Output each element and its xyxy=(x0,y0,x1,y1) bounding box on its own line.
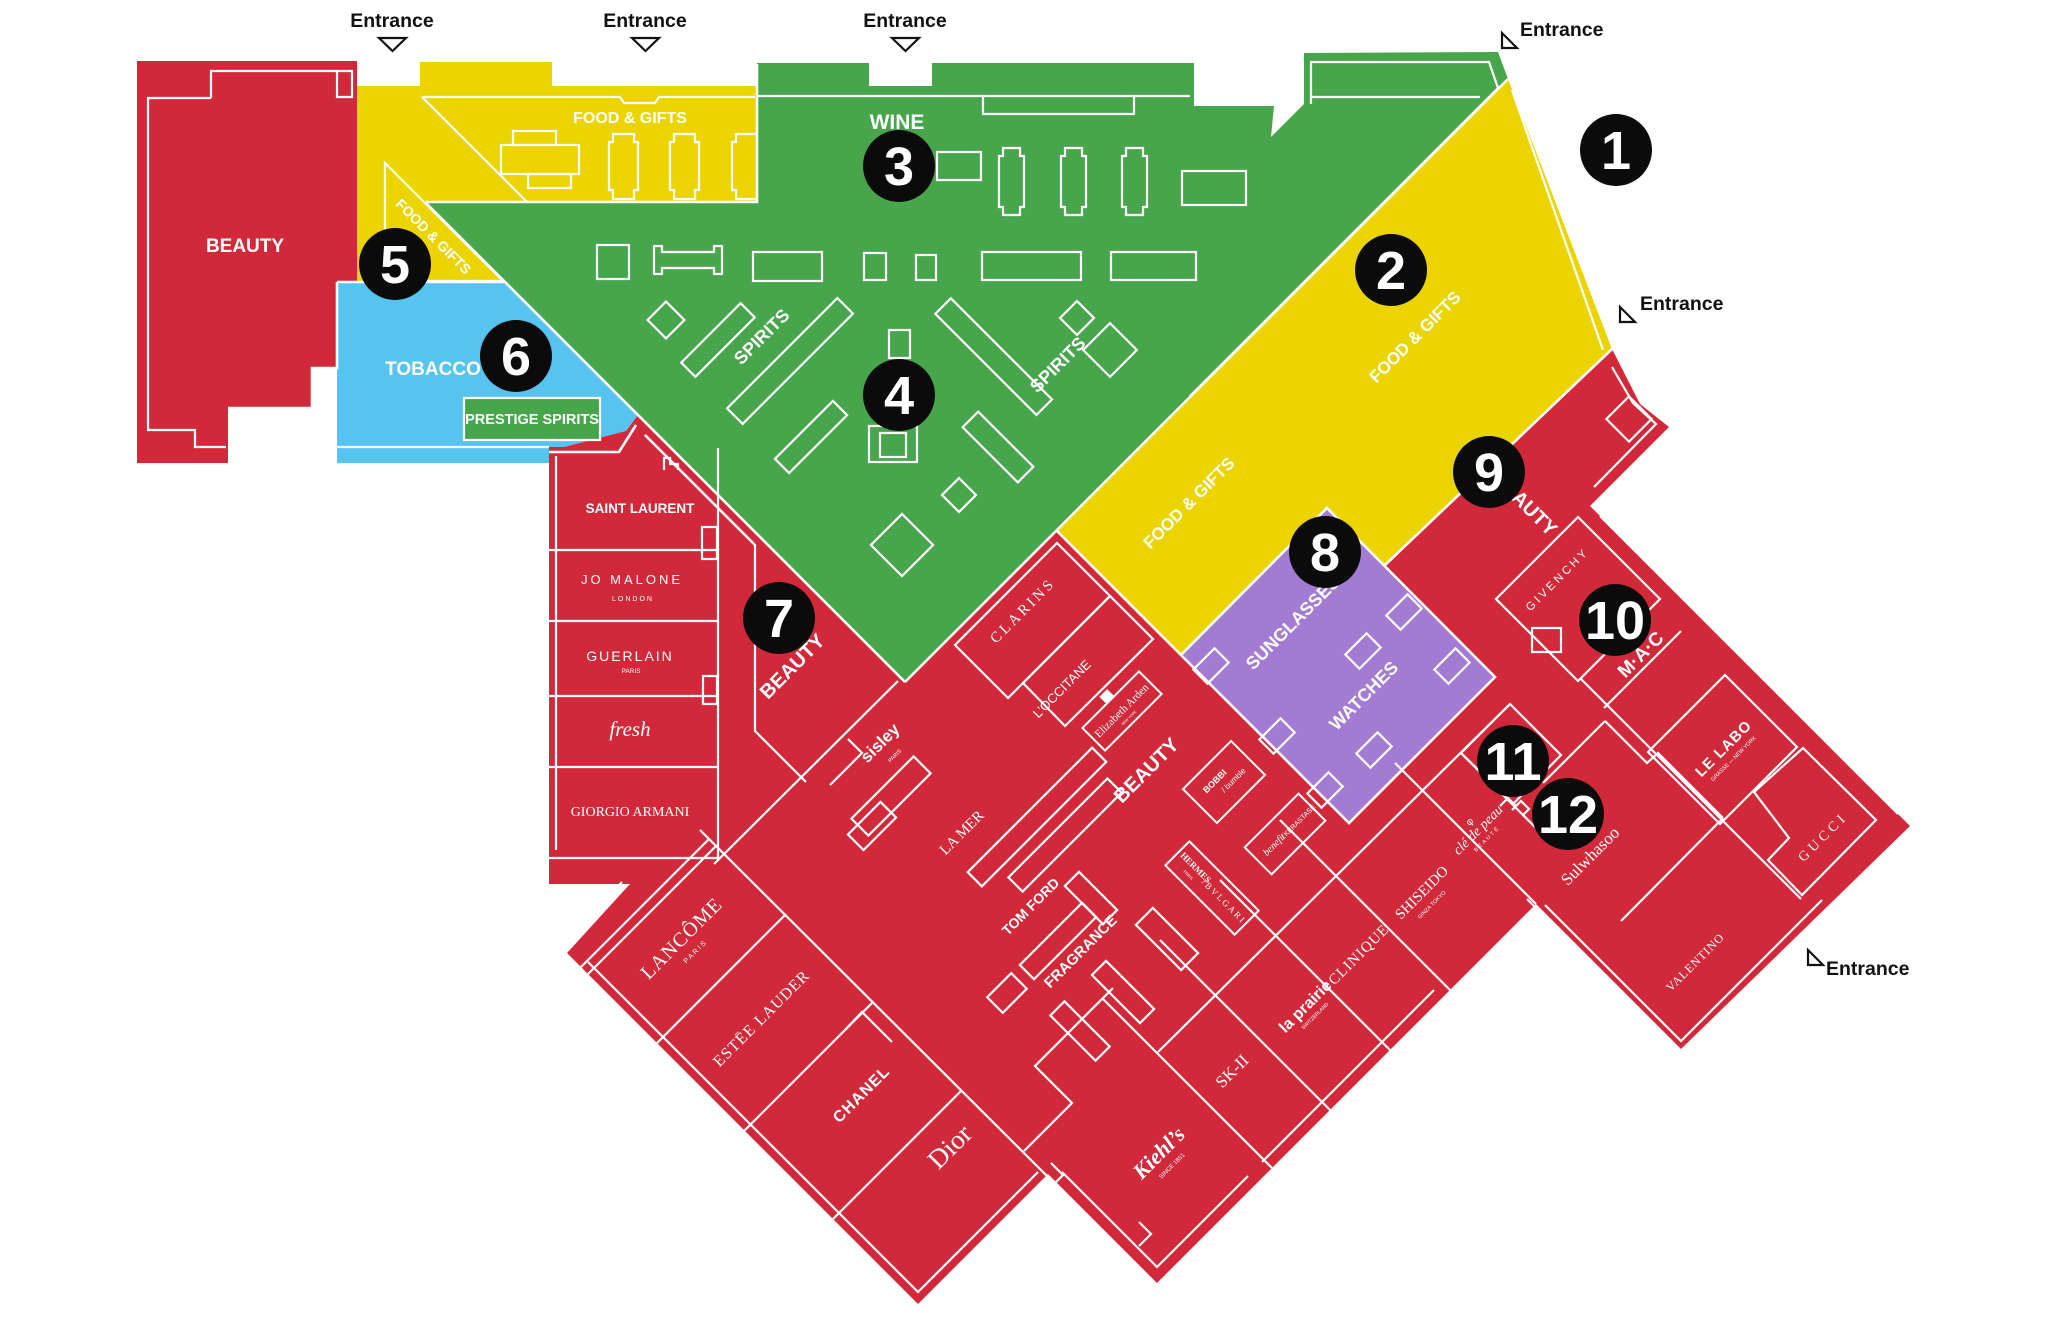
svg-text:12: 12 xyxy=(1538,785,1598,845)
svg-text:JO MALONE: JO MALONE xyxy=(581,572,683,587)
svg-text:1: 1 xyxy=(1601,121,1631,181)
svg-text:TOBACCO: TOBACCO xyxy=(385,359,481,380)
svg-text:Entrance: Entrance xyxy=(863,10,947,32)
svg-text:Entrance: Entrance xyxy=(350,10,434,32)
svg-text:Entrance: Entrance xyxy=(1640,293,1724,315)
svg-text:Entrance: Entrance xyxy=(1520,19,1604,41)
svg-text:10: 10 xyxy=(1585,591,1645,651)
svg-text:3: 3 xyxy=(884,137,914,197)
svg-text:9: 9 xyxy=(1474,443,1504,503)
svg-text:SAINT LAURENT: SAINT LAURENT xyxy=(586,501,695,516)
svg-text:BEAUTY: BEAUTY xyxy=(206,236,284,257)
svg-text:Entrance: Entrance xyxy=(1826,958,1910,980)
svg-text:6: 6 xyxy=(501,327,531,387)
svg-text:LONDON: LONDON xyxy=(612,596,654,603)
svg-text:11: 11 xyxy=(1484,732,1541,792)
svg-text:GIORGIO ARMANI: GIORGIO ARMANI xyxy=(571,805,690,820)
svg-text:FOOD & GIFTS: FOOD & GIFTS xyxy=(573,110,687,127)
svg-text:PRESTIGE SPIRITS: PRESTIGE SPIRITS xyxy=(465,412,599,428)
svg-text:2: 2 xyxy=(1376,241,1406,301)
svg-text:PARIS: PARIS xyxy=(621,668,641,675)
svg-text:GUERLAIN: GUERLAIN xyxy=(586,648,674,664)
svg-text:fresh: fresh xyxy=(609,717,650,741)
svg-text:7: 7 xyxy=(764,589,794,649)
svg-text:8: 8 xyxy=(1310,523,1340,583)
svg-text:4: 4 xyxy=(884,366,914,426)
svg-text:5: 5 xyxy=(380,235,410,295)
svg-text:Entrance: Entrance xyxy=(603,10,687,32)
